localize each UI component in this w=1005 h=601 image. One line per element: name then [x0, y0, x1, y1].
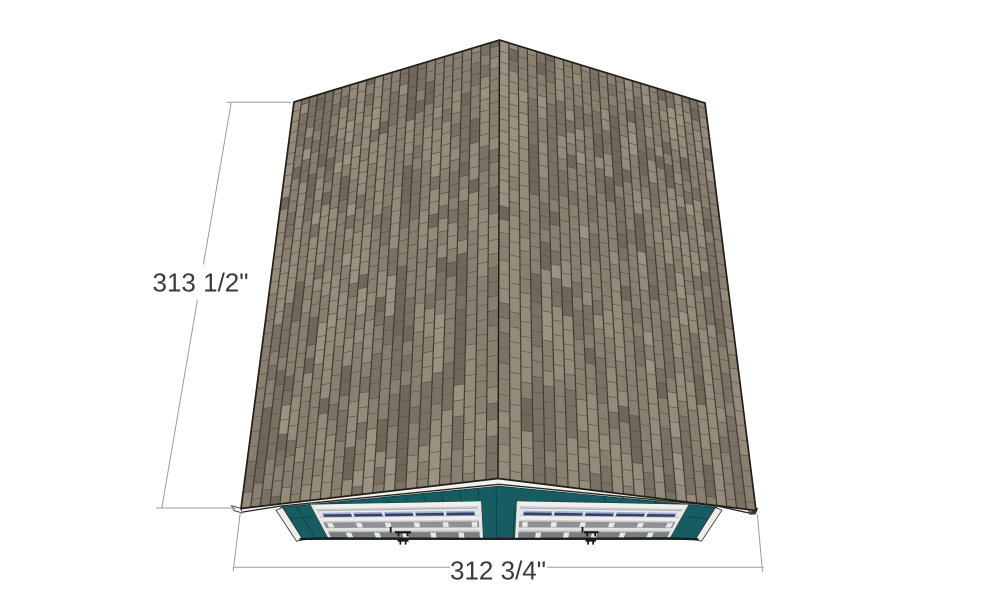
svg-text:312 3/4": 312 3/4" [450, 556, 546, 586]
svg-text:313 1/2": 313 1/2" [153, 268, 249, 298]
